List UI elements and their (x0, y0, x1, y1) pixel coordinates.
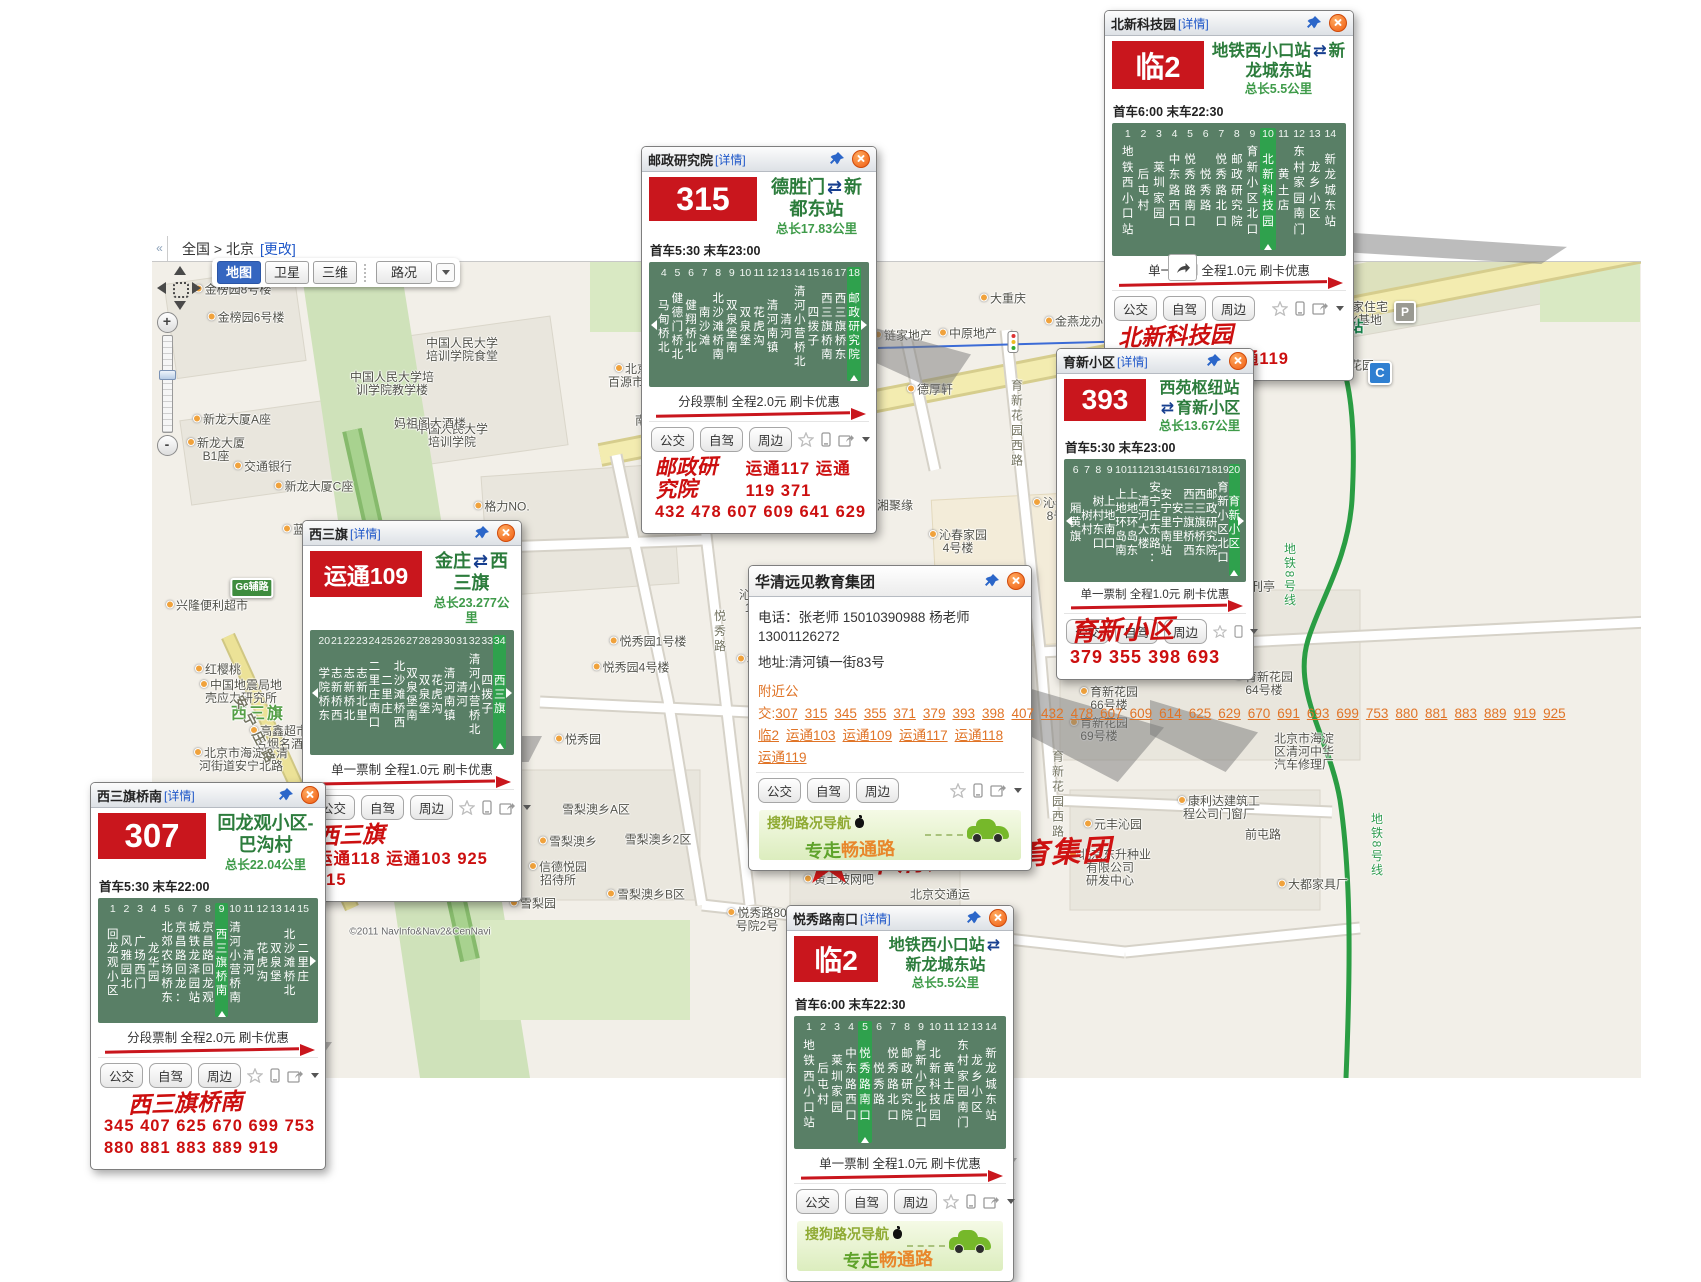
bus-stop[interactable]: 4马甸桥北 (657, 267, 671, 381)
bus-stop-number: 5 (862, 1021, 868, 1035)
bus-stop-number: 4 (848, 1021, 854, 1035)
popup-action-button[interactable]: 自驾 (149, 1063, 192, 1088)
bus-stop[interactable]: 2后屯村 (816, 1021, 830, 1143)
bus-stop[interactable]: 8树村东口 (1093, 464, 1104, 576)
bus-stop-number: 6 (178, 903, 184, 917)
popup-action-button[interactable]: 周边 (410, 795, 453, 820)
both-directions-arrow: ⇄ (985, 937, 1002, 954)
bus-route-link[interactable]: 运通119 (758, 750, 807, 765)
pin-icon[interactable] (1206, 353, 1222, 369)
bus-stop-name: 双泉堡南 (406, 649, 418, 741)
route-number: 运通109 (310, 551, 422, 597)
bus-stop[interactable]: 27双泉堡南 (406, 635, 419, 749)
chevron-down-icon[interactable] (1336, 306, 1344, 311)
pan-center-icon[interactable] (173, 282, 189, 298)
bus-route-link[interactable]: 运通118 (955, 728, 1004, 743)
bus-route-link[interactable]: 691 (1277, 706, 1300, 721)
bus-stop[interactable]: 13双泉堡 (269, 903, 283, 1017)
mobile-icon[interactable] (1234, 625, 1243, 638)
bus-stop-name: 清河大楼 (1138, 478, 1150, 568)
pan-left-icon[interactable] (157, 282, 166, 294)
bus-stop-name: 西三旗桥东 (835, 281, 847, 373)
bus-stop[interactable]: 11上地环岛东 (1127, 464, 1138, 576)
bus-stop[interactable]: 2风雅园北 (120, 903, 134, 1017)
bus-stop-name: 北新科技园 (1262, 142, 1274, 242)
share-icon[interactable] (983, 1195, 1000, 1209)
bus-stop[interactable]: 22志新桥北 (343, 635, 356, 749)
bus-stop-name: 清河南镇 (767, 281, 779, 373)
bus-stop[interactable]: 14新龙城东站 (984, 1021, 998, 1143)
bus-stop[interactable]: 16西三旗桥南 (820, 267, 834, 381)
bus-route-link[interactable]: 371 (893, 706, 916, 721)
close-icon[interactable] (852, 150, 870, 168)
pin-icon[interactable] (829, 151, 845, 167)
popup-titlebar[interactable]: 西三旗桥南[详情] (91, 783, 325, 808)
bus-stop-name: 京昌路回龙： (175, 917, 187, 1009)
route-length: 总长13.67公里 (1153, 419, 1246, 434)
action-buttons: 公交自驾周边 (651, 427, 792, 452)
sogou-navigation-ad[interactable]: 搜狗路况导航 专走畅通路 (797, 1221, 1003, 1271)
bus-popup-xisanqi: 西三旗[详情] 运通109 金庄⇄西三旗 总长23.277公里 20学院桥东21… (302, 520, 522, 902)
chevron-down-icon[interactable] (311, 1073, 319, 1078)
detail-link[interactable]: [详情] (1117, 353, 1148, 370)
bus-stop[interactable]: 10北新科技园 (928, 1021, 942, 1143)
mobile-icon[interactable] (966, 1194, 976, 1209)
bus-route-link[interactable]: 运通103 (786, 728, 836, 743)
share-icon[interactable] (287, 1069, 304, 1083)
bus-route-link[interactable]: 478 (1071, 706, 1094, 721)
bus-stop-number: 4 (1172, 128, 1178, 142)
close-icon[interactable] (1229, 352, 1247, 370)
detail-link[interactable]: [详情] (1178, 15, 1209, 32)
bus-stop[interactable]: 8邮政研究院 (900, 1021, 914, 1143)
zoom-out-button[interactable]: - (157, 435, 178, 456)
close-icon[interactable] (1329, 14, 1347, 32)
pan-right-icon[interactable] (192, 282, 201, 294)
bus-route-link[interactable]: 889 (1484, 706, 1507, 721)
bus-stop[interactable]: 15安宁里 (1172, 464, 1183, 576)
collapse-sidebar-icon[interactable]: « (152, 236, 168, 261)
popup-title: 育新小区 (1063, 352, 1115, 371)
change-city-link[interactable]: [更改] (260, 241, 296, 257)
bus-stop[interactable]: 24二里庄南口 (368, 635, 381, 749)
bus-route-link[interactable]: 607 (1100, 706, 1123, 721)
bus-stop[interactable]: 3莱圳家园 (830, 1021, 844, 1143)
bus-stop[interactable]: 20学院桥东 (318, 635, 331, 749)
bus-stop-number: 14 (1324, 128, 1336, 142)
traffic-button[interactable]: 路况 (376, 261, 432, 284)
bus-stop[interactable]: 9育新小区北口 (914, 1021, 928, 1143)
bus-stop-name: 志新桥西 (331, 649, 343, 741)
bus-route-link[interactable]: 693 (1307, 706, 1330, 721)
popup-body: 运通109 金庄⇄西三旗 总长23.277公里 20学院桥东21志新桥西22志新… (303, 546, 521, 901)
favorite-star-icon[interactable] (1272, 301, 1288, 316)
bus-stop[interactable]: 17西三旗桥东 (1195, 464, 1206, 576)
bus-stop[interactable]: 13清河 (779, 267, 793, 381)
stops-scroll-right[interactable] (1238, 516, 1244, 526)
bus-stop[interactable]: 18邮政研究院 (1206, 464, 1217, 576)
bus-stop[interactable]: 7南沙滩 (698, 267, 712, 381)
bus-stop[interactable]: 12花虎沟 (256, 903, 270, 1017)
bus-stop[interactable]: 4龙华园 (147, 903, 161, 1017)
apple-logo-icon (893, 1229, 902, 1239)
popup-action-button[interactable]: 周边 (856, 778, 899, 803)
bus-route-link[interactable]: 883 (1454, 706, 1477, 721)
bus-stop[interactable]: 23志新北里 (356, 635, 369, 749)
bus-stop[interactable]: 14北沙滩桥北 (283, 903, 297, 1017)
stops-scroll-left[interactable] (1066, 516, 1072, 526)
action-buttons: 公交自驾周边 (312, 795, 453, 820)
bus-stop[interactable]: 11黄土店 (1276, 128, 1292, 250)
bus-stop[interactable]: 9西三旗桥南 (215, 903, 229, 1017)
bus-stop[interactable]: 13龙乡小区 (970, 1021, 984, 1143)
popup-titlebar[interactable]: 育新小区[详情] (1057, 349, 1253, 374)
route-from: 西苑枢纽站 (1159, 380, 1239, 397)
bus-route-link[interactable]: 355 (864, 706, 887, 721)
bus-route-link[interactable]: 629 (1218, 706, 1241, 721)
chevron-down-icon[interactable] (862, 437, 870, 442)
bus-stop[interactable]: 5北郊农场桥东 (160, 903, 174, 1017)
bus-stop-number: 8 (1234, 128, 1240, 142)
fare-underline-arrow (101, 1046, 315, 1055)
share-icon[interactable] (990, 783, 1007, 797)
bus-stop[interactable]: 13安宁庄东路： (1149, 464, 1160, 576)
zoom-in-button[interactable]: + (157, 312, 178, 333)
bus-stop[interactable]: 11花虎沟 (752, 267, 766, 381)
bus-stop-number: 16 (1183, 464, 1195, 478)
bus-stop-number: 10 (229, 903, 241, 917)
bus-stop[interactable]: 19育新小区北口 (1217, 464, 1228, 576)
bus-stop[interactable]: 6悦秀路 (872, 1021, 886, 1143)
bus-stop[interactable]: 12东村家园南门 (1291, 128, 1307, 250)
bus-stop[interactable]: 25二里庄 (381, 635, 394, 749)
bus-stop[interactable]: 14安宁里南站 (1161, 464, 1172, 576)
bus-stop[interactable]: 1回龙观小区 (106, 903, 120, 1017)
bus-stop-number: 6 (1073, 464, 1079, 478)
bus-stop[interactable]: 5健德门桥北 (671, 267, 685, 381)
both-directions-arrow: ⇄ (471, 551, 490, 571)
bus-route-link[interactable]: 393 (952, 706, 975, 721)
bus-stop-number: 4 (661, 267, 667, 281)
bus-stop[interactable]: 16西三旗桥西 (1183, 464, 1194, 576)
stops-strip: 1地铁西小口站2后屯村3莱圳家园4中东路西口5悦秀路南口6悦秀路7悦秀路北口8邮… (794, 1016, 1006, 1149)
bus-stop[interactable]: 8京昌路回龙观 (201, 903, 215, 1017)
popup-action-button[interactable]: 周边 (1164, 619, 1207, 644)
popup-action-button[interactable]: 公交 (651, 427, 694, 452)
bus-stop[interactable]: 26北沙滩桥西 (393, 635, 406, 749)
map-type-button-3d[interactable]: 三维 (313, 261, 357, 284)
bus-stop-number: 10 (929, 1021, 941, 1035)
bus-stop-number: 11 (1278, 128, 1289, 142)
bus-popup-xisanqiqiaonan: 西三旗桥南[详情] 307 回龙观小区-巴沟村 总长22.04公里 首车5:30… (90, 782, 326, 1170)
detail-link[interactable]: [详情] (164, 787, 195, 804)
bus-stop-name: 回龙观小区 (107, 917, 119, 1009)
bus-stop[interactable]: 29花虎沟 (431, 635, 444, 749)
route-endpoints: 西苑枢纽站⇄育新小区 总长13.67公里 (1153, 379, 1246, 434)
popup-action-button[interactable]: 自驾 (700, 427, 743, 452)
bus-route-link[interactable]: 307 (775, 706, 798, 721)
car-icon (949, 1237, 991, 1250)
favorite-star-icon[interactable] (459, 800, 475, 815)
bus-stop-name: 北沙滩桥西 (394, 649, 406, 741)
share-icon[interactable] (1312, 301, 1329, 315)
pin-icon[interactable] (1306, 15, 1322, 31)
pin-icon[interactable] (278, 787, 294, 803)
bus-stop-name: 二里庄南口 (369, 649, 381, 741)
bus-route-link[interactable]: 398 (982, 706, 1005, 721)
share-icon[interactable] (499, 801, 516, 815)
bus-route-link[interactable]: 925 (1543, 706, 1566, 721)
close-icon[interactable] (497, 524, 515, 542)
bus-route-link[interactable]: 670 (1248, 706, 1271, 721)
popup-actions: 公交自驾周边 (794, 1183, 1006, 1217)
bus-stop-name: 二里庄 (381, 649, 393, 741)
bus-stop[interactable]: 4中东路西口 (844, 1021, 858, 1143)
pan-up-icon[interactable] (174, 266, 186, 275)
bus-stop[interactable]: 3莱圳家园 (1151, 128, 1167, 250)
bus-stop-number: 8 (1095, 464, 1101, 478)
route-header: 307 回龙观小区-巴沟村 总长22.04公里 (98, 813, 318, 873)
bus-stop[interactable]: 5悦秀路南口 (1182, 128, 1198, 250)
both-directions-arrow: ⇄ (1311, 42, 1329, 60)
popup-titlebar[interactable]: 西三旗[详情] (303, 521, 521, 546)
bus-stop[interactable]: 7悦秀路北口 (886, 1021, 900, 1143)
bus-stop[interactable]: 15四拨子 (807, 267, 821, 381)
bus-stop[interactable]: 12清河南镇 (766, 267, 780, 381)
handwritten-route-numbers-line: 880 881 883 889 919 (104, 1138, 316, 1159)
bus-stop[interactable]: 8邮政研究院 (1229, 128, 1245, 250)
chevron-down-icon (442, 270, 450, 275)
bus-stop-name: 上地南口 (1104, 478, 1116, 568)
action-icons (459, 800, 531, 815)
bus-stop[interactable]: 34西三旗 (493, 635, 506, 749)
detail-link[interactable]: [详情] (860, 910, 891, 927)
mobile-icon[interactable] (1295, 301, 1305, 316)
bus-stop-number: 11 (754, 267, 765, 281)
bus-stop[interactable]: 7树村 (1081, 464, 1092, 576)
bus-route-link[interactable]: 运通117 (899, 728, 948, 743)
bus-stop[interactable]: 6悦秀路 (1198, 128, 1214, 250)
zoom-slider[interactable] (162, 335, 173, 433)
popup-action-button[interactable]: 自驾 (1115, 619, 1158, 644)
bus-route-link[interactable]: 379 (923, 706, 946, 721)
bus-route-link[interactable]: 614 (1159, 706, 1182, 721)
bus-stop[interactable]: 6健翔桥北 (684, 267, 698, 381)
route-from: 德胜门 (771, 177, 825, 197)
stops-scroll-right[interactable] (861, 320, 867, 330)
bus-stop[interactable]: 32清河小营桥北 (468, 635, 481, 749)
bus-stop-name: 马甸桥北 (658, 281, 670, 373)
bus-stop-number: 26 (394, 635, 406, 649)
bus-stop-number: 6 (1203, 128, 1209, 142)
sogou-navigation-ad[interactable]: 搜狗路况导航 专走畅通路 (759, 810, 1021, 860)
route-from: 地铁西小口站 (1212, 42, 1311, 60)
popup-action-button[interactable]: 公交 (758, 778, 801, 803)
bus-stop[interactable]: 13龙乡小区 (1307, 128, 1323, 250)
map-type-button-satellite[interactable]: 卫星 (265, 261, 309, 284)
bus-stop[interactable]: 7城铁龙泽园站 (188, 903, 202, 1017)
bus-stop-name: 花虎沟 (257, 917, 269, 1009)
bus-stop[interactable]: 4中东路西口 (1167, 128, 1183, 250)
bus-route-link[interactable]: 407 (1012, 706, 1035, 721)
map-pan-control[interactable] (157, 266, 201, 310)
mobile-icon[interactable] (270, 1068, 280, 1083)
bus-stop[interactable]: 31清河 (456, 635, 469, 749)
bus-stop[interactable]: 5悦秀路南口 (858, 1021, 872, 1143)
stops-strip: 6厢黄旗7树村8树村东口9上地南口10上地环岛南11上地环岛东12清河大楼13安… (1064, 459, 1246, 582)
handwritten-route-numbers-line: 379 355 398 693 (1070, 646, 1244, 669)
chevron-down-icon[interactable] (523, 805, 531, 810)
chevron-down-icon[interactable] (1007, 1199, 1015, 1204)
bus-stop[interactable]: 9育新小区北口 (1245, 128, 1261, 250)
pin-icon[interactable] (474, 525, 490, 541)
bus-stop[interactable]: 10清河小营桥南 (228, 903, 242, 1017)
popup-titlebar[interactable]: 北新科技园[详情] (1105, 11, 1353, 36)
map-type-button-map[interactable]: 地图 (217, 261, 261, 284)
bus-stop[interactable]: 12清河大楼 (1138, 464, 1149, 576)
stops-scroll-left[interactable] (651, 320, 657, 330)
popup-titlebar[interactable]: 悦秀路南口[详情] (787, 906, 1013, 931)
favorite-star-icon[interactable] (950, 783, 966, 798)
bus-popup-yuexiulunankou: 悦秀路南口[详情] 临2 地铁西小口站⇄新龙城东站 总长5.5公里 首车6:00… (786, 905, 1014, 1282)
route-header: 393 西苑枢纽站⇄育新小区 总长13.67公里 (1064, 379, 1246, 434)
route-endpoints: 地铁西小口站⇄新龙城东站 总长5.5公里 (1211, 41, 1346, 98)
bus-stop[interactable]: 15二里庄 (296, 903, 310, 1017)
bus-route-link[interactable]: 919 (1514, 706, 1537, 721)
bus-stop[interactable]: 10上地环岛南 (1115, 464, 1126, 576)
bus-route-link[interactable]: 881 (1425, 706, 1448, 721)
bus-stop[interactable]: 9双泉堡南 (725, 267, 739, 381)
popup-action-button[interactable]: 自驾 (1163, 296, 1206, 321)
bus-stop[interactable]: 9上地南口 (1104, 464, 1115, 576)
bus-stop[interactable]: 33四拨子 (481, 635, 494, 749)
bus-route-link[interactable]: 625 (1189, 706, 1212, 721)
bus-stop[interactable]: 17西三旗桥东 (834, 267, 848, 381)
bus-route-link[interactable]: 432 (1041, 706, 1064, 721)
stops-strip: 1回龙观小区2风雅园北3广场西门4龙华园5北郊农场桥东6京昌路回龙：7城铁龙泽园… (98, 898, 318, 1023)
bus-stop-number: 9 (729, 267, 735, 281)
favorite-star-icon[interactable] (1213, 625, 1227, 638)
bus-route-link[interactable]: 315 (805, 706, 828, 721)
action-icons (247, 1068, 319, 1083)
pan-down-icon[interactable] (174, 301, 186, 310)
bus-stop[interactable]: 2后屯村 (1136, 128, 1152, 250)
zoom-slider-knob[interactable] (159, 370, 176, 380)
fare-info: 单一票制 全程1.0元 刷卡优惠 (1064, 586, 1246, 602)
popup-titlebar[interactable]: 邮政研究院[详情] (642, 147, 876, 172)
detail-link[interactable]: [详情] (350, 525, 381, 542)
breadcrumb: 全国 > 北京[更改] (182, 239, 296, 259)
stops-scroll-right[interactable] (506, 688, 512, 698)
close-icon[interactable] (301, 786, 319, 804)
popup-action-button[interactable]: 自驾 (361, 795, 404, 820)
stops-scroll-left[interactable] (312, 688, 318, 698)
bus-stop-number: 6 (688, 267, 694, 281)
favorite-star-icon[interactable] (943, 1194, 959, 1209)
route-header: 315 德胜门⇄新都东站 总长17.83公里 (649, 177, 869, 237)
popup-action-button[interactable]: 周边 (894, 1189, 937, 1214)
bus-route-link[interactable]: 880 (1395, 706, 1418, 721)
bus-stop-number: 13 (1149, 464, 1161, 478)
bus-stop[interactable]: 6京昌路回龙： (174, 903, 188, 1017)
bus-route-link[interactable]: 753 (1366, 706, 1389, 721)
bus-route-link[interactable]: 临2 (758, 728, 779, 743)
bus-stop[interactable]: 11黄土店 (942, 1021, 956, 1143)
stops-scroll-right[interactable] (310, 956, 316, 966)
bus-route-link[interactable]: 609 (1130, 706, 1153, 721)
bus-stop-number: 9 (1249, 128, 1255, 142)
bus-stop[interactable]: 10北新科技园 (1260, 128, 1276, 250)
bus-stop[interactable]: 14清河小营桥北 (793, 267, 807, 381)
bus-stop-number: 33 (481, 635, 493, 649)
popup-action-button[interactable]: 自驾 (845, 1189, 888, 1214)
bus-stop[interactable]: 1地铁西小口站 (802, 1021, 816, 1143)
bus-stop[interactable]: 8北沙滩桥南 (711, 267, 725, 381)
popup-action-button[interactable]: 周边 (749, 427, 792, 452)
bus-stop[interactable]: 1地铁西小口站 (1120, 128, 1136, 250)
first-last-bus: 首车5:30 末车23:00 (650, 240, 869, 259)
current-stop-arrow-icon (850, 375, 858, 381)
bus-route-link[interactable]: 699 (1336, 706, 1359, 721)
share-button[interactable] (1168, 254, 1197, 281)
popup-action-button[interactable]: 周边 (1212, 296, 1255, 321)
bus-stop-number: 2 (820, 1021, 826, 1035)
popup-action-button[interactable]: 周边 (198, 1063, 241, 1088)
bus-stop[interactable]: 21志新桥西 (331, 635, 344, 749)
bus-stop[interactable]: 7悦秀路北口 (1213, 128, 1229, 250)
bus-stop[interactable]: 11清河 (242, 903, 256, 1017)
bus-route-link[interactable]: 345 (834, 706, 857, 721)
current-stop-arrow-icon (218, 1011, 226, 1017)
favorite-star-icon[interactable] (247, 1068, 263, 1083)
bus-stop[interactable]: 30清河南镇 (443, 635, 456, 749)
popup-action-button[interactable]: 公交 (1066, 619, 1109, 644)
bus-stop-number: 18 (848, 267, 860, 281)
share-icon[interactable] (838, 433, 855, 447)
bus-stop[interactable]: 3广场西门 (133, 903, 147, 1017)
bus-stop[interactable]: 14新龙城东站 (1323, 128, 1339, 250)
first-last-bus: 首车5:30 末车22:00 (99, 876, 318, 895)
bus-stop-name: 树村东口 (1093, 478, 1105, 568)
bus-stop[interactable]: 12东村家园南门 (956, 1021, 970, 1143)
mobile-icon[interactable] (482, 800, 492, 815)
bus-stop[interactable]: 10双泉堡 (739, 267, 753, 381)
detail-link[interactable]: [详情] (715, 151, 746, 168)
close-icon[interactable] (1007, 572, 1025, 590)
popup-title: 北新科技园 (1111, 14, 1176, 33)
current-stop-arrow-icon (496, 743, 504, 749)
chevron-down-icon[interactable] (1014, 788, 1022, 793)
popup-titlebar[interactable]: 华清远见教育集团 (749, 566, 1031, 597)
chevron-down-icon[interactable] (1250, 629, 1258, 634)
popup-action-button[interactable]: 公交 (1114, 296, 1157, 321)
pin-icon[interactable] (984, 573, 1000, 589)
bus-stop[interactable]: 18邮政研究院 (847, 267, 861, 381)
close-icon[interactable] (989, 909, 1007, 927)
motion-lines (907, 1245, 945, 1247)
popup-action-button[interactable]: 公交 (796, 1189, 839, 1214)
favorite-star-icon[interactable] (798, 432, 814, 447)
popup-action-button[interactable]: 公交 (100, 1063, 143, 1088)
bus-stop[interactable]: 28双泉堡 (418, 635, 431, 749)
mobile-icon[interactable] (973, 783, 983, 798)
traffic-caret-button[interactable] (436, 263, 455, 282)
bus-route-link[interactable]: 运通109 (843, 728, 893, 743)
popup-action-button[interactable]: 自驾 (807, 778, 850, 803)
pin-icon[interactable] (966, 910, 982, 926)
mobile-icon[interactable] (821, 432, 831, 447)
bus-stop-name: 广场西门 (134, 917, 146, 1009)
